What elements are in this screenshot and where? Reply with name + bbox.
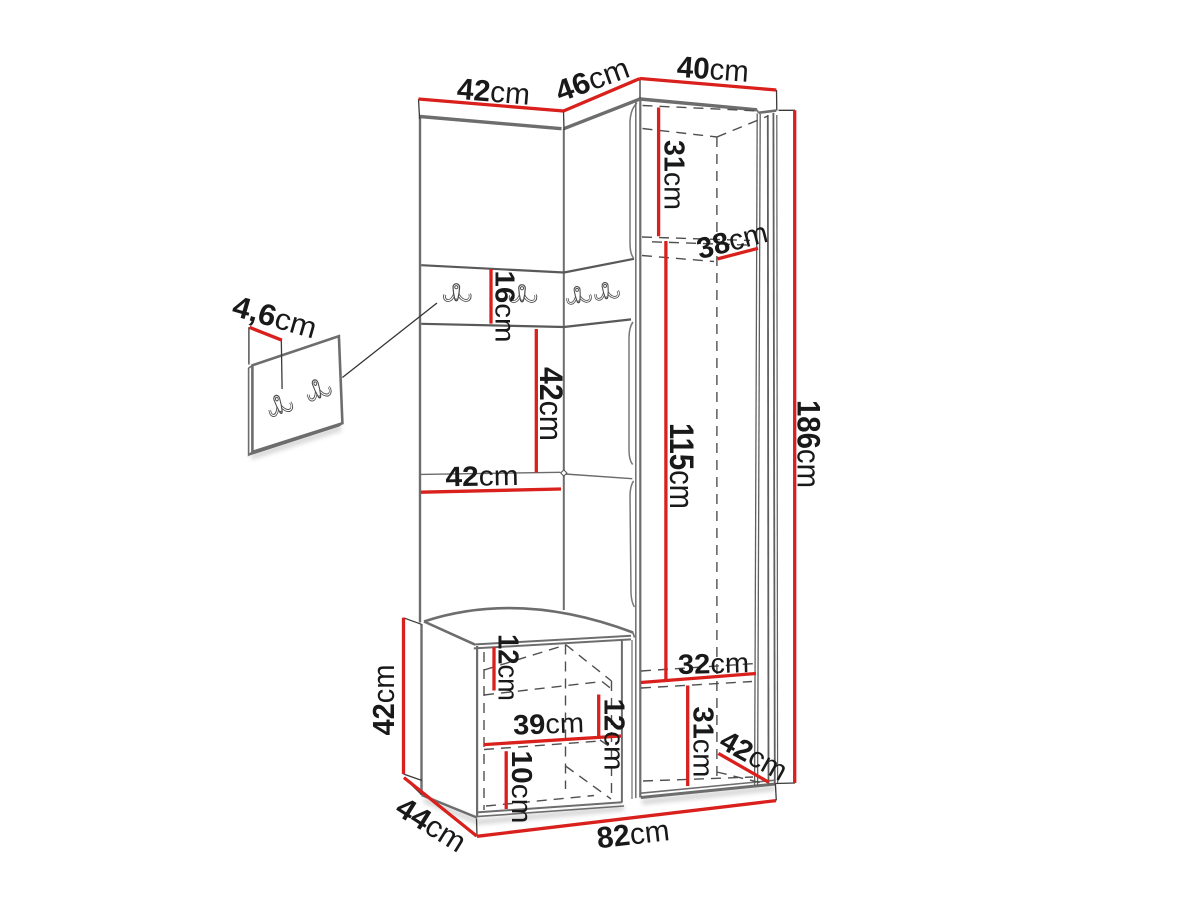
svg-text:42cm: 42cm: [366, 665, 401, 736]
svg-text:42cm: 42cm: [445, 460, 519, 492]
svg-text:186cm: 186cm: [791, 400, 827, 488]
svg-text:40cm: 40cm: [676, 51, 750, 89]
svg-text:31cm: 31cm: [687, 707, 719, 778]
svg-text:42cm: 42cm: [533, 367, 569, 441]
svg-text:31cm: 31cm: [658, 140, 690, 210]
svg-text:12cm: 12cm: [492, 634, 524, 701]
svg-text:12cm: 12cm: [598, 699, 630, 771]
svg-text:16cm: 16cm: [489, 271, 520, 343]
svg-text:115cm: 115cm: [662, 423, 700, 509]
svg-text:42cm: 42cm: [456, 73, 531, 112]
svg-text:10cm: 10cm: [505, 751, 537, 824]
svg-text:32cm: 32cm: [678, 647, 750, 680]
svg-text:39cm: 39cm: [513, 707, 585, 740]
